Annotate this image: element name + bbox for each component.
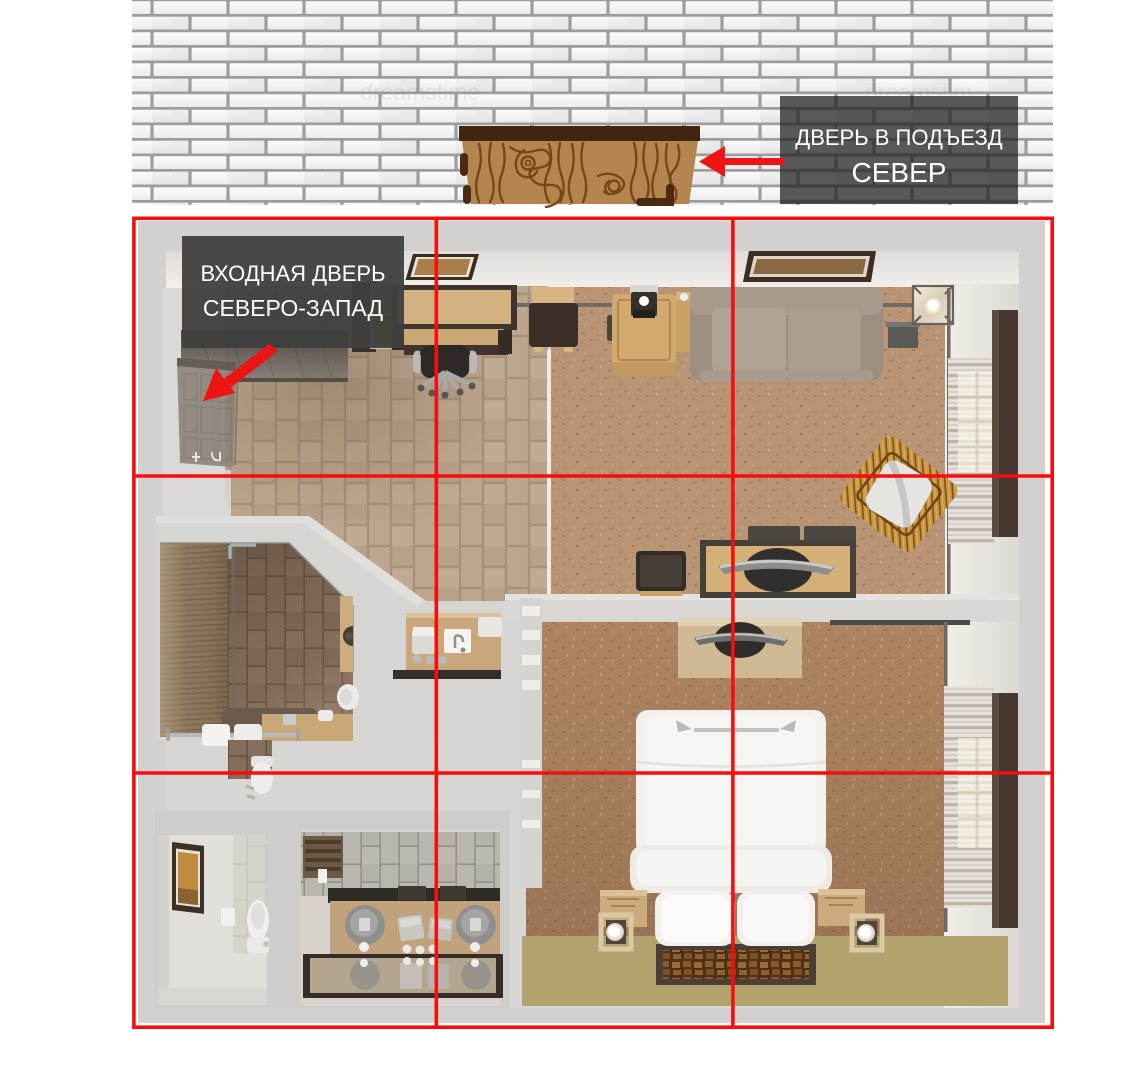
svg-text:СЕВЕР: СЕВЕР <box>852 157 947 188</box>
svg-text:ВХОДНАЯ ДВЕРЬ: ВХОДНАЯ ДВЕРЬ <box>200 261 385 286</box>
svg-text:СЕВЕРО-ЗАПАД: СЕВЕРО-ЗАПАД <box>203 295 384 321</box>
svg-text:dreamstime: dreamstime <box>360 79 480 105</box>
svg-text:ДВЕРЬ В ПОДЪЕЗД: ДВЕРЬ В ПОДЪЕЗД <box>795 125 1002 150</box>
